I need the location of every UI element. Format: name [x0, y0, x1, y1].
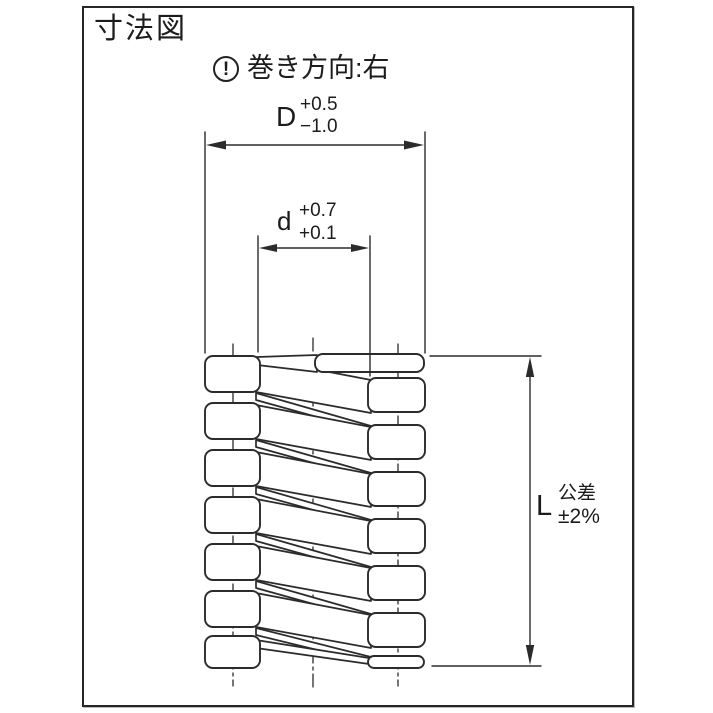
spring-section	[205, 354, 425, 668]
tolerance-word: 公差	[558, 484, 600, 503]
tolerance-lower: +0.1	[299, 224, 337, 243]
spring-lineart	[0, 0, 713, 713]
inner-diameter-tolerance: +0.7 +0.1	[299, 201, 337, 247]
tolerance-upper: +0.7	[299, 201, 337, 220]
outer-diameter-tolerance: +0.5 −1.0	[300, 95, 338, 139]
free-length-label: L	[536, 492, 552, 521]
exclamation-glyph: !	[223, 60, 229, 79]
dimension-drawing: 寸法図 ! 巻き方向:右 D +0.5 −1.0 d +0.7 +0.1 L 公…	[0, 0, 713, 713]
tolerance-lower: −1.0	[300, 117, 338, 136]
tolerance-percent: ±2%	[558, 506, 600, 527]
tolerance-upper: +0.5	[300, 95, 338, 114]
outer-diameter-label: D	[276, 103, 296, 131]
inner-diameter-label: d	[277, 208, 291, 234]
page-title: 寸法図	[94, 15, 187, 44]
winding-direction-note: 巻き方向:右	[247, 55, 390, 82]
free-length-tolerance: 公差 ±2%	[558, 484, 600, 527]
exclamation-icon: !	[213, 56, 239, 82]
